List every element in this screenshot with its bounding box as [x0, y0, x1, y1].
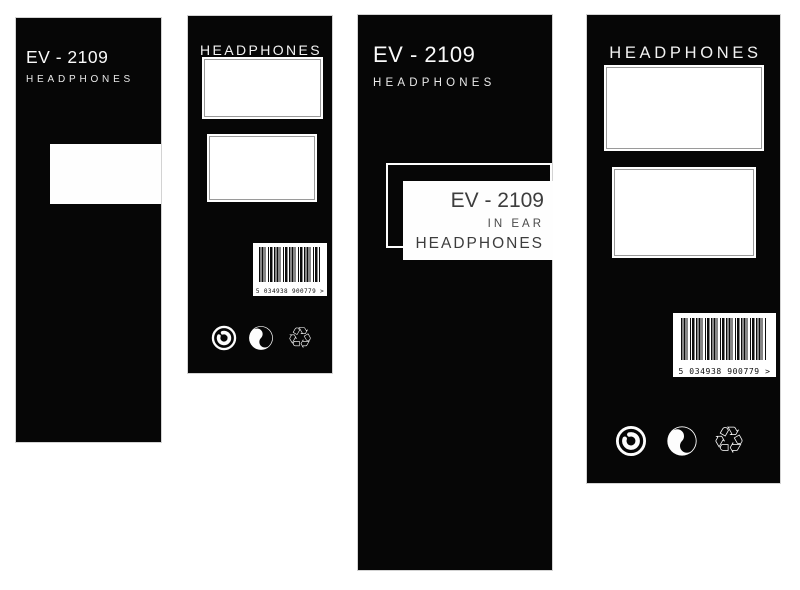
blank-photo-box [604, 65, 764, 151]
barcode: 5 034938 900779 > [253, 243, 327, 296]
recycling-icon: ♲ [710, 421, 748, 461]
label-panel-4: HEADPHONES 5 034938 900779 > ♲ [587, 15, 780, 483]
model-number: EV - 2109 [26, 47, 108, 68]
copyright-c-icon [211, 325, 237, 351]
label-panel-2: HEADPHONES 5 034938 900779 > ♲ [188, 16, 332, 373]
product-title: HEADPHONES [587, 44, 780, 63]
card-product-name: HEADPHONES [415, 235, 544, 253]
barcode: 5 034938 900779 > [673, 313, 776, 377]
barcode-bars [681, 318, 765, 360]
label-panel-3: EV - 2109 HEADPHONES EV - 2109 IN EAR HE… [358, 15, 552, 570]
product-name: HEADPHONES [26, 74, 134, 85]
product-name: HEADPHONES [373, 77, 496, 89]
card-model-number: EV - 2109 [451, 189, 544, 213]
barcode-digits: 5 034938 900779 > [673, 367, 776, 376]
product-title: HEADPHONES [188, 42, 332, 58]
barcode-digits: 5 034938 900779 > [253, 288, 327, 295]
blank-photo-box [50, 144, 161, 204]
card-variant: IN EAR [488, 218, 544, 231]
info-card: EV - 2109 IN EAR HEADPHONES [403, 181, 553, 260]
blank-photo-box [612, 167, 756, 258]
barcode-bars [259, 247, 320, 281]
label-panel-1: EV - 2109 HEADPHONES [16, 18, 161, 442]
green-dot-icon [666, 425, 698, 457]
recycling-icon: ♲ [285, 322, 315, 354]
copyright-c-icon [615, 425, 647, 457]
blank-photo-box [202, 57, 323, 119]
blank-photo-box [207, 134, 317, 202]
green-dot-icon [248, 325, 274, 351]
model-number: EV - 2109 [373, 42, 475, 68]
